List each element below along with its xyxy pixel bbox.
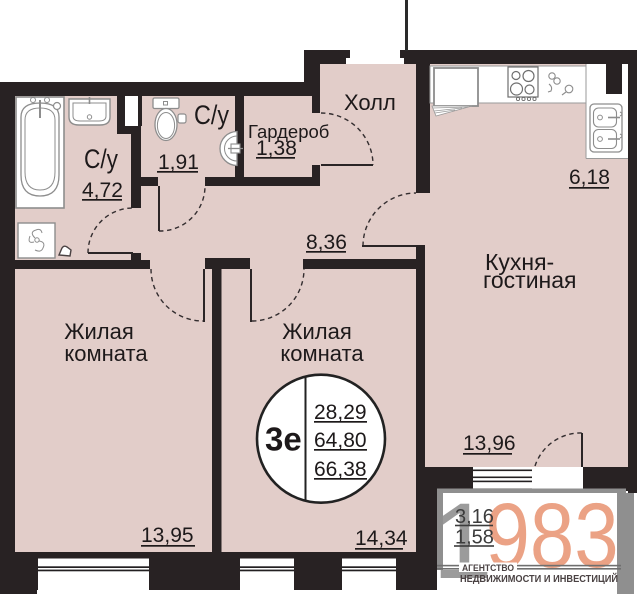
svg-text:С/у: С/у <box>194 100 229 130</box>
svg-text:14,34: 14,34 <box>355 527 408 550</box>
svg-text:3е: 3е <box>265 421 302 458</box>
svg-text:28,29: 28,29 <box>314 401 367 424</box>
svg-text:6,18: 6,18 <box>569 166 610 189</box>
svg-text:1,91: 1,91 <box>158 151 199 174</box>
svg-text:гостиная: гостиная <box>483 267 577 293</box>
svg-text:66,38: 66,38 <box>314 458 367 481</box>
svg-text:64,80: 64,80 <box>314 429 367 452</box>
svg-text:комната: комната <box>280 341 364 366</box>
svg-text:13,95: 13,95 <box>141 524 194 547</box>
svg-text:НЕДВИЖИМОСТИ И ИНВЕСТИЦИЙ: НЕДВИЖИМОСТИ И ИНВЕСТИЦИЙ <box>460 572 618 585</box>
svg-text:Холл: Холл <box>344 90 396 115</box>
svg-text:комната: комната <box>64 341 148 366</box>
svg-text:13,96: 13,96 <box>463 432 516 455</box>
svg-text:1,38: 1,38 <box>256 137 297 160</box>
svg-text:С/у: С/у <box>84 144 118 174</box>
svg-text:4,72: 4,72 <box>82 179 123 202</box>
svg-text:8,36: 8,36 <box>306 231 347 254</box>
